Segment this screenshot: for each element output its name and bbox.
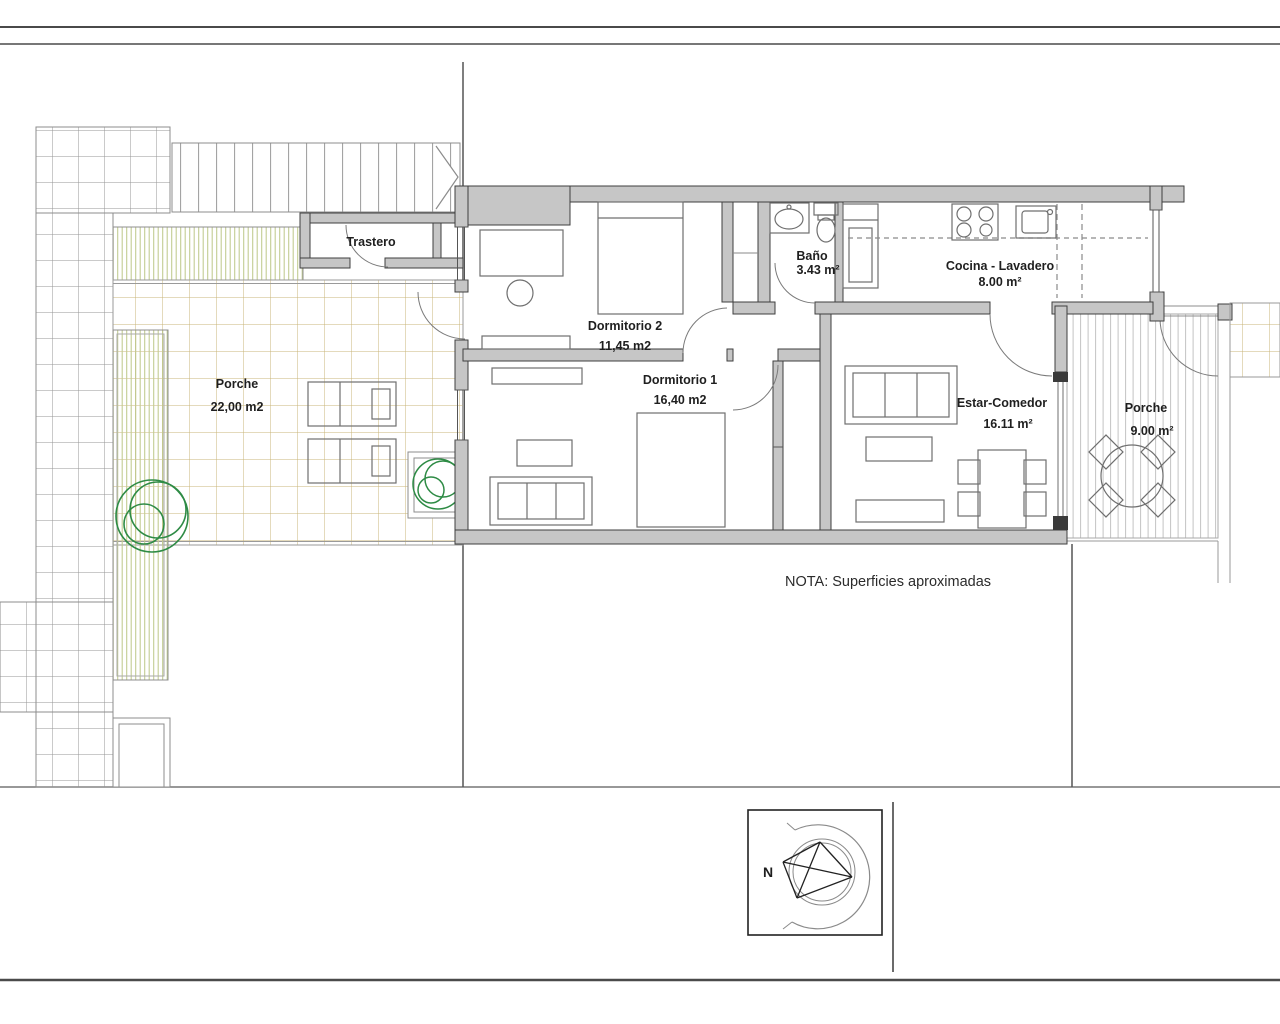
- coffee-table: [866, 437, 932, 461]
- area-cocina: 8.00 m²: [978, 275, 1021, 289]
- chair: [507, 280, 533, 306]
- pergola-band: [113, 227, 303, 280]
- floor-plan-drawing: N Trastero Dormitorio 2 11,45 m2 Dormito…: [0, 0, 1280, 1024]
- north-arrow: N: [748, 810, 882, 935]
- neighbor-tiles-right: [1230, 303, 1280, 377]
- planter-bottom: [113, 718, 170, 787]
- window-cocina: [1150, 210, 1162, 292]
- pillar: [1053, 372, 1068, 382]
- label-porche-right: Porche: [1125, 401, 1167, 415]
- living-room-furniture: [845, 366, 1046, 528]
- pillar: [1053, 516, 1068, 530]
- label-cocina: Cocina - Lavadero: [946, 259, 1055, 273]
- tv-cabinet: [856, 500, 944, 522]
- area-dormitorio-1: 16,40 m2: [654, 393, 707, 407]
- sofa: [845, 366, 957, 424]
- sofa: [490, 477, 592, 525]
- area-bano: 3.43 m²: [796, 263, 839, 277]
- label-trastero: Trastero: [346, 235, 396, 249]
- dormitorio-2-door-arc: [683, 308, 727, 353]
- label-dormitorio-1: Dormitorio 1: [643, 373, 717, 387]
- stairs-band: [172, 143, 460, 212]
- sink: [1016, 206, 1056, 238]
- label-estar-comedor: Estar-Comedor: [957, 396, 1047, 410]
- washbasin: [770, 203, 809, 233]
- dormitorio-1-door-arc: [733, 365, 778, 410]
- north-label: N: [763, 864, 773, 880]
- bed: [637, 413, 725, 527]
- kitchen-door-arc: [990, 314, 1052, 376]
- window-dormitorio-2: [455, 227, 468, 280]
- stove: [952, 204, 998, 240]
- label-porche-left: Porche: [216, 377, 258, 391]
- label-bano: Baño: [796, 249, 828, 263]
- dresser: [482, 336, 570, 349]
- surfaces-note: NOTA: Superficies aproximadas: [785, 574, 991, 590]
- area-porche-left: 22,00 m2: [211, 400, 264, 414]
- area-porche-right: 9.00 m²: [1130, 424, 1173, 438]
- floor-plan-page: N Trastero Dormitorio 2 11,45 m2 Dormito…: [0, 0, 1280, 1024]
- dining-set: [958, 450, 1046, 528]
- bed: [598, 202, 683, 314]
- area-estar-comedor: 16.11 m²: [983, 417, 1032, 431]
- bathroom-fixtures: [770, 203, 838, 242]
- area-dormitorio-2: 11,45 m2: [599, 339, 651, 353]
- toilet: [814, 203, 838, 242]
- laundry-cabinet: [843, 204, 878, 288]
- desk: [480, 230, 563, 276]
- side-table: [517, 440, 572, 466]
- dormitorio-1-furniture: [490, 368, 725, 527]
- shelf: [492, 368, 582, 384]
- label-dormitorio-2: Dormitorio 2: [588, 319, 662, 333]
